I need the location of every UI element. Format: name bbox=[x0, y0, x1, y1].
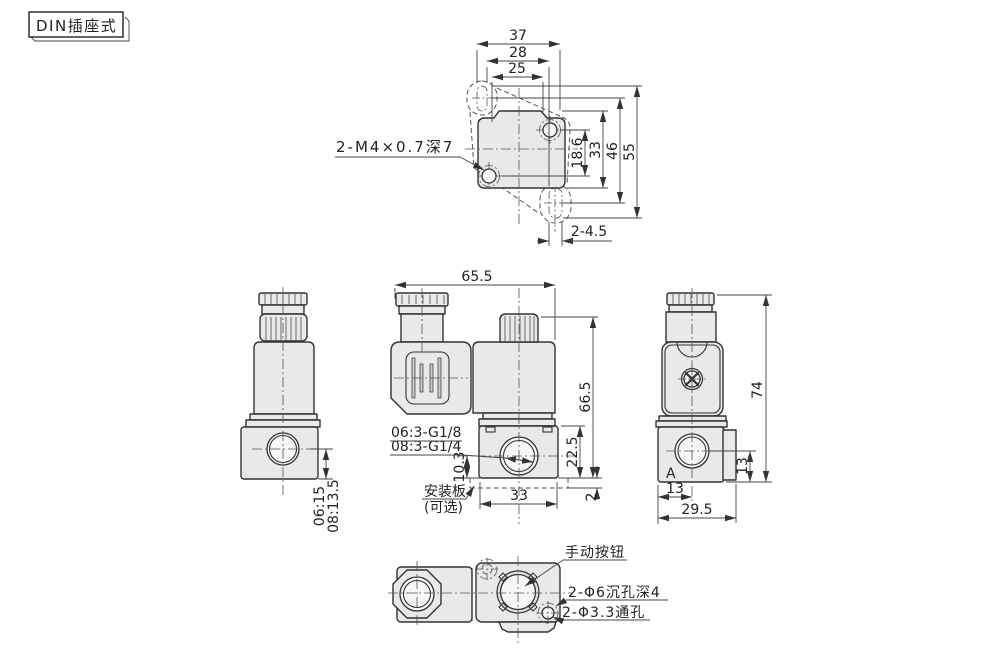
dim-37: 37 bbox=[509, 28, 527, 44]
coil-body bbox=[254, 342, 314, 414]
gland-ring bbox=[669, 305, 712, 312]
product-type-label: DIN插座式 bbox=[29, 12, 129, 41]
dim-74: 74 bbox=[750, 381, 766, 399]
through-hole-note: 2-Φ3.3通孔 bbox=[562, 605, 645, 621]
port-letter: A bbox=[666, 466, 676, 482]
dim-22-5: 22.5 bbox=[565, 436, 581, 467]
thread-note: 2-M4×0.7深7 bbox=[336, 138, 454, 156]
coil-flange-upper bbox=[483, 413, 552, 419]
coil-flange-upper bbox=[250, 414, 317, 420]
dim-plate-2: 2 bbox=[584, 493, 600, 502]
counterbore-note: 2-Φ6沉孔深4 bbox=[568, 585, 661, 601]
dim-13-vertical: 13 bbox=[735, 457, 751, 475]
left-view: 06:15 08:13.5 bbox=[241, 287, 342, 533]
coil-flange-lower bbox=[479, 419, 555, 426]
dim-18-6: 18.6 bbox=[570, 137, 586, 168]
upper-slot-hole bbox=[477, 86, 487, 111]
dim-33-bottom: 33 bbox=[510, 488, 528, 504]
dim-33-top: 33 bbox=[588, 141, 604, 159]
gland-neck bbox=[666, 312, 716, 342]
manual-button-label: 手动按钮 bbox=[565, 545, 625, 561]
body-bottom-tab bbox=[499, 622, 556, 632]
mount-plate-note-1: 安装板 bbox=[424, 484, 466, 500]
dim-28: 28 bbox=[509, 45, 527, 61]
dim-25: 25 bbox=[508, 61, 526, 77]
dim-13-horizontal: 13 bbox=[666, 481, 684, 497]
dim-08-13-5: 08:13.5 bbox=[326, 479, 342, 533]
mount-screw-hole-bottom bbox=[482, 169, 496, 183]
coil-flange-upper bbox=[659, 416, 726, 421]
right-view: A 13 74 13 29.5 bbox=[656, 288, 772, 524]
dim-29-5: 29.5 bbox=[681, 502, 712, 518]
dim-2-4-5: 2-4.5 bbox=[571, 224, 607, 240]
coil-flange-lower bbox=[656, 421, 727, 427]
dim-55: 55 bbox=[622, 143, 638, 161]
bottom-view: 手动按钮 2-Φ6沉孔深4 2-Φ3.3通孔 bbox=[388, 545, 668, 644]
knurled-nut bbox=[260, 314, 307, 341]
drawing-page: DIN插座式 bbox=[0, 0, 1000, 650]
mount-screw-hole-top bbox=[543, 123, 557, 137]
coil-body bbox=[473, 342, 555, 413]
dim-46: 46 bbox=[605, 142, 621, 160]
cable-gland-cap bbox=[667, 293, 714, 305]
product-type-text: DIN插座式 bbox=[36, 17, 117, 35]
top-view: 37 28 25 18.6 33 46 55 2-4.5 2-M4×0.7深7 bbox=[335, 28, 642, 246]
front-view: 65.5 66.5 22.5 10.3 33 2 06:3-G1/8 08:3-… bbox=[390, 269, 602, 524]
dim-10-3: 10.3 bbox=[452, 451, 468, 482]
dim-65-5: 65.5 bbox=[461, 269, 492, 285]
mount-plate-note-2: (可选) bbox=[424, 500, 463, 516]
dim-66-5: 66.5 bbox=[578, 381, 594, 412]
technical-drawing: DIN插座式 bbox=[0, 0, 1000, 650]
